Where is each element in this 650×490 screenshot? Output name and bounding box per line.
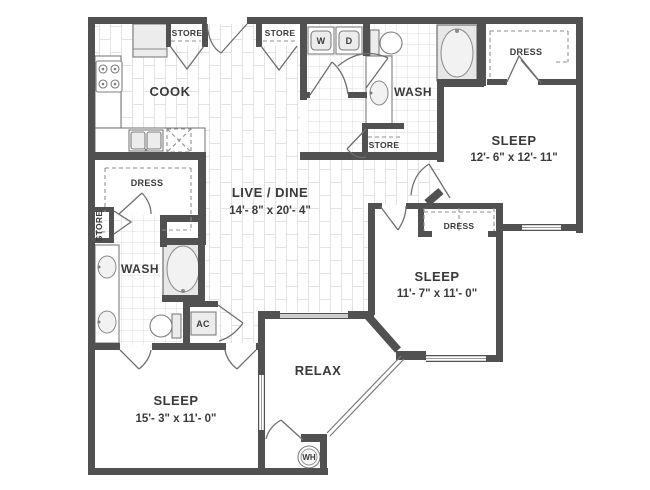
bathtub-bottom-icon: [163, 244, 203, 296]
appliance-label-washer: W: [317, 36, 326, 46]
room-label-wash-bottom: WASH: [121, 262, 159, 276]
toilet-top-icon: [370, 30, 402, 56]
sleep-bottom-left-door-bath: [120, 350, 151, 369]
closet-label-store-left: STORE: [94, 211, 104, 242]
room-dims-sleep-bottom-left: 15'- 3" x 11'- 0": [136, 413, 217, 425]
window-sleep-bottom-right: [426, 355, 486, 362]
closet-label-dress-left: DRESS: [131, 178, 164, 188]
appliance-label-dryer: D: [346, 36, 353, 46]
room-dims-sleep-top-right: 12'- 6" x 12'- 11": [470, 152, 557, 164]
window-relax-left: [258, 375, 265, 430]
refrigerator-icon: [133, 24, 167, 57]
sleep-bottom-right-door: [380, 206, 406, 230]
window-sleep-top-right: [522, 224, 561, 231]
kitchen-sink-icon: [129, 130, 163, 152]
closet-label-dress-top-right: DRESS: [510, 47, 543, 57]
room-label-sleep-top-right: SLEEP: [491, 133, 536, 148]
closet-label-wh: WH: [302, 453, 316, 462]
closet-label-dress-bottom-right: DRESS: [444, 221, 475, 231]
floor-plan: COOK LIVE / DINE 14'- 8" x 20'- 4" WASH …: [0, 0, 650, 490]
room-label-sleep-bottom-right: SLEEP: [414, 269, 459, 284]
room-label-sleep-bottom-left: SLEEP: [153, 393, 198, 408]
room-label-wash-top: WASH: [394, 85, 432, 99]
vanity-top-icon: [366, 56, 392, 126]
relax-angled-wall: [367, 315, 398, 350]
dress-left-door: [119, 193, 151, 214]
closet-label-ac: AC: [196, 319, 210, 329]
dress-top-right-door: [507, 56, 541, 83]
toilet-bottom-icon: [150, 314, 181, 338]
vanity-bottom-icon: [95, 245, 119, 343]
room-label-live-dine: LIVE / DINE: [232, 185, 308, 200]
sleep-bottom-left-door-hall: [225, 350, 256, 369]
stove-icon: [96, 61, 122, 92]
room-label-relax: RELAX: [295, 363, 342, 378]
bathtub-top-icon: [437, 25, 477, 81]
room-label-cook: COOK: [150, 84, 191, 99]
room-dims-live-dine: 14'- 8" x 20'- 4": [229, 205, 311, 217]
closet-label-store-entry: STORE: [265, 28, 296, 38]
floor-live-dine: [206, 160, 368, 312]
room-dims-sleep-bottom-right: 11'- 7" x 11'- 0": [397, 288, 477, 300]
closet-label-store-kitchen: STORE: [172, 28, 203, 38]
closet-label-store-bath: STORE: [369, 140, 400, 150]
wh-closet-door: [266, 420, 303, 440]
window-relax-top: [280, 313, 348, 319]
